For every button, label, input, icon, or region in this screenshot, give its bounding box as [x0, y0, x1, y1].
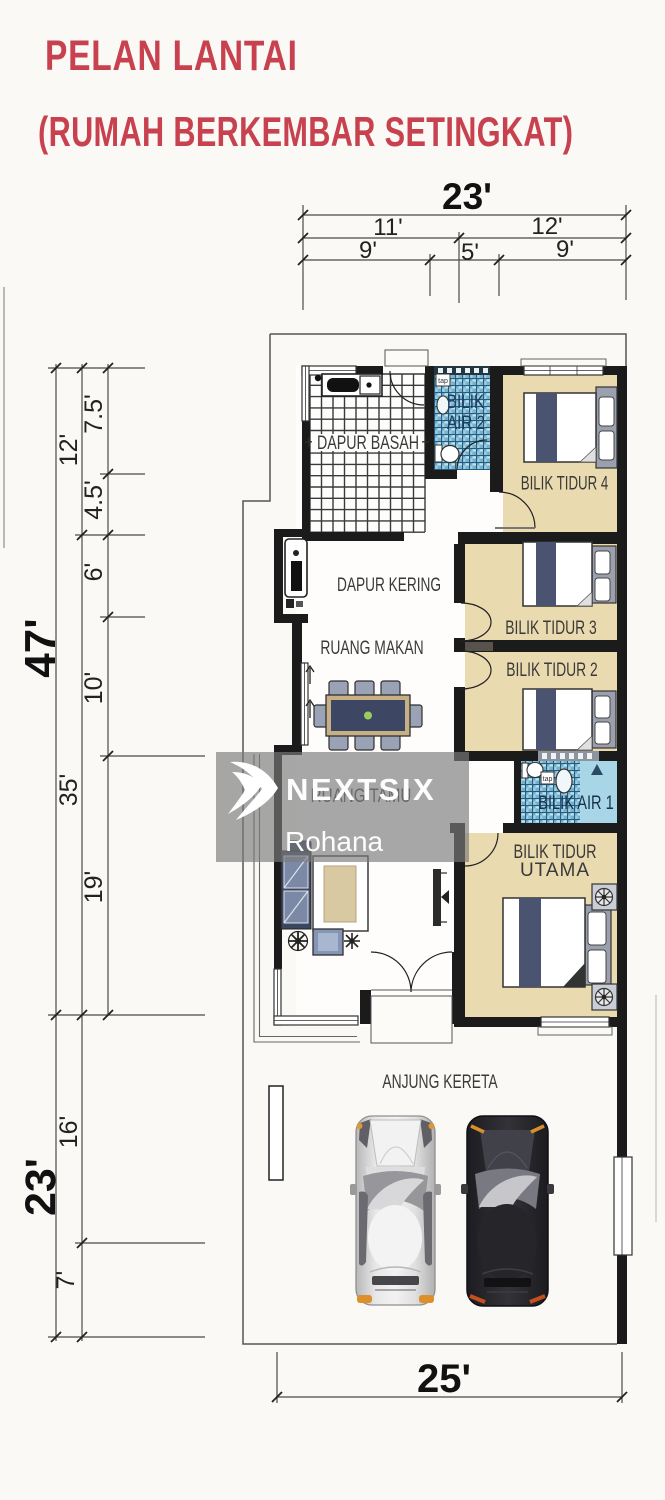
svg-text:7.5': 7.5': [80, 394, 108, 434]
svg-text:11': 11': [373, 214, 403, 241]
svg-text:6': 6': [80, 563, 108, 582]
svg-text:23': 23': [17, 1158, 65, 1216]
svg-text:PELAN LANTAI: PELAN LANTAI: [45, 32, 298, 80]
svg-text:47': 47': [16, 618, 65, 677]
svg-text:19': 19': [80, 871, 108, 904]
svg-text:tap: tap: [543, 776, 553, 783]
svg-text:10': 10': [80, 672, 108, 705]
svg-text:5': 5': [461, 239, 479, 266]
svg-text:12': 12': [55, 434, 83, 467]
svg-text:Rohana: Rohana: [285, 826, 384, 857]
svg-text:7': 7': [52, 1271, 80, 1290]
svg-text:4.5': 4.5': [80, 480, 108, 520]
svg-text:RUANG MAKAN: RUANG MAKAN: [320, 637, 423, 659]
svg-text:35': 35': [55, 774, 83, 807]
svg-text:DAPUR BASAH: DAPUR BASAH: [317, 432, 419, 453]
svg-text:16': 16': [55, 1116, 83, 1149]
svg-text:BILIK TIDUR 3: BILIK TIDUR 3: [505, 617, 596, 639]
svg-text:AIR 2: AIR 2: [447, 411, 485, 433]
svg-text:(RUMAH BERKEMBAR SETINGKAT): (RUMAH BERKEMBAR SETINGKAT): [38, 108, 573, 155]
svg-text:NEXTSIX: NEXTSIX: [286, 772, 436, 807]
svg-text:25': 25': [417, 1357, 471, 1401]
svg-text:tap: tap: [438, 378, 448, 385]
svg-text:9': 9': [556, 236, 574, 263]
svg-text:BILIK AIR 1: BILIK AIR 1: [538, 792, 614, 813]
svg-text:BILIK: BILIK: [447, 390, 485, 412]
svg-text:23': 23': [442, 176, 492, 217]
svg-text:DAPUR KERING: DAPUR KERING: [337, 574, 441, 596]
svg-text:ANJUNG KERETA: ANJUNG KERETA: [382, 1071, 498, 1093]
svg-text:BILIK TIDUR 2: BILIK TIDUR 2: [506, 659, 597, 681]
svg-text:9': 9': [359, 237, 377, 264]
svg-text:UTAMA: UTAMA: [520, 860, 590, 881]
svg-text:BILIK TIDUR 4: BILIK TIDUR 4: [521, 473, 609, 494]
